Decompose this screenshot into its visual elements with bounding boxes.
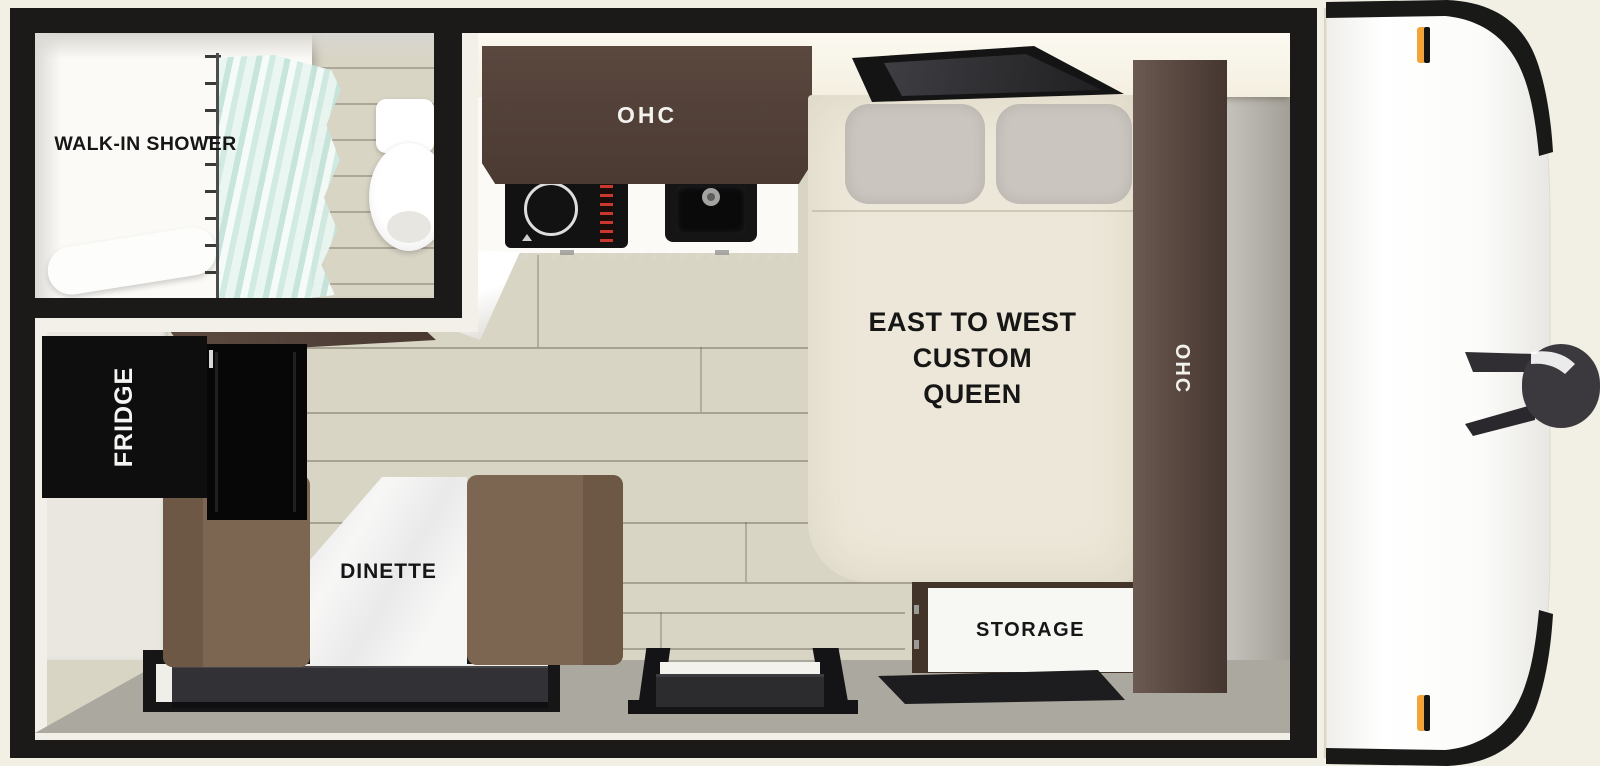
walk-in-shower-label: WALK-IN SHOWER xyxy=(53,133,238,157)
shower-curtain-rod xyxy=(216,53,219,298)
bed-label-line1: EAST TO WEST xyxy=(808,304,1137,340)
bathroom-wall-trim xyxy=(35,318,478,332)
toilet-seat xyxy=(387,211,431,243)
storage-hinge xyxy=(914,640,919,649)
floor-plank-seam xyxy=(700,347,702,412)
entry-step-threshold xyxy=(660,662,820,674)
bathroom-wall-trim xyxy=(462,33,478,330)
bed-label: EAST TO WEST CUSTOM QUEEN xyxy=(808,304,1137,412)
cabinet-hinge xyxy=(560,250,574,255)
dinette-bench-left-back xyxy=(163,475,203,667)
kitchen-overhead-cabinet: OHC xyxy=(482,46,812,184)
dinette-bench-right xyxy=(467,475,623,665)
right-side-wall xyxy=(1227,33,1290,733)
bed-label-line3: QUEEN xyxy=(808,376,1137,412)
rv-floorplan: OHC EAST TO WEST CUSTOM QUEEN OHC STORAG… xyxy=(0,0,1600,766)
marker-light-bottom xyxy=(1417,695,1430,731)
shower-pan xyxy=(44,224,219,298)
bathroom: WALK-IN SHOWER xyxy=(35,33,434,298)
fridge-door-gap xyxy=(293,352,296,512)
storage-hinge xyxy=(914,605,919,614)
front-cap-body xyxy=(1326,4,1550,762)
fridge-side xyxy=(207,344,307,520)
storage-label: STORAGE xyxy=(976,619,1085,642)
marker-light-top xyxy=(1417,27,1430,63)
floor-plank-seam xyxy=(600,612,905,614)
cabinet-hinge xyxy=(715,250,729,255)
storage-front: STORAGE xyxy=(928,588,1133,672)
fridge-label: FRIDGE xyxy=(110,337,140,497)
cooktop-controls xyxy=(600,176,613,242)
floor-plank-seam xyxy=(745,522,747,582)
bottom-wall-trim xyxy=(35,733,1290,740)
fridge-door-gap xyxy=(215,352,218,512)
bedside-overhead-cabinet-label: OHC xyxy=(1167,329,1193,409)
fridge-handle xyxy=(209,350,213,368)
pillow xyxy=(845,104,985,204)
entry-step xyxy=(622,640,862,714)
dinette-window-glass xyxy=(172,666,548,708)
trailer-front-cap xyxy=(1317,0,1600,766)
entry-step-tread xyxy=(656,674,824,707)
bed-seam xyxy=(812,210,1133,212)
kitchen-overhead-cabinet-label: OHC xyxy=(617,102,677,129)
bed-label-line2: CUSTOM xyxy=(808,340,1137,376)
pillow xyxy=(996,104,1132,204)
dinette-bench-right-back xyxy=(583,475,623,665)
shower-curtain xyxy=(219,55,341,298)
dinette-label: DINETTE xyxy=(310,560,467,584)
cooktop-burner xyxy=(524,182,578,236)
floor-plank-seam xyxy=(537,255,539,347)
bathroom-wall-shade xyxy=(35,33,434,59)
faucet-spout xyxy=(707,193,715,201)
